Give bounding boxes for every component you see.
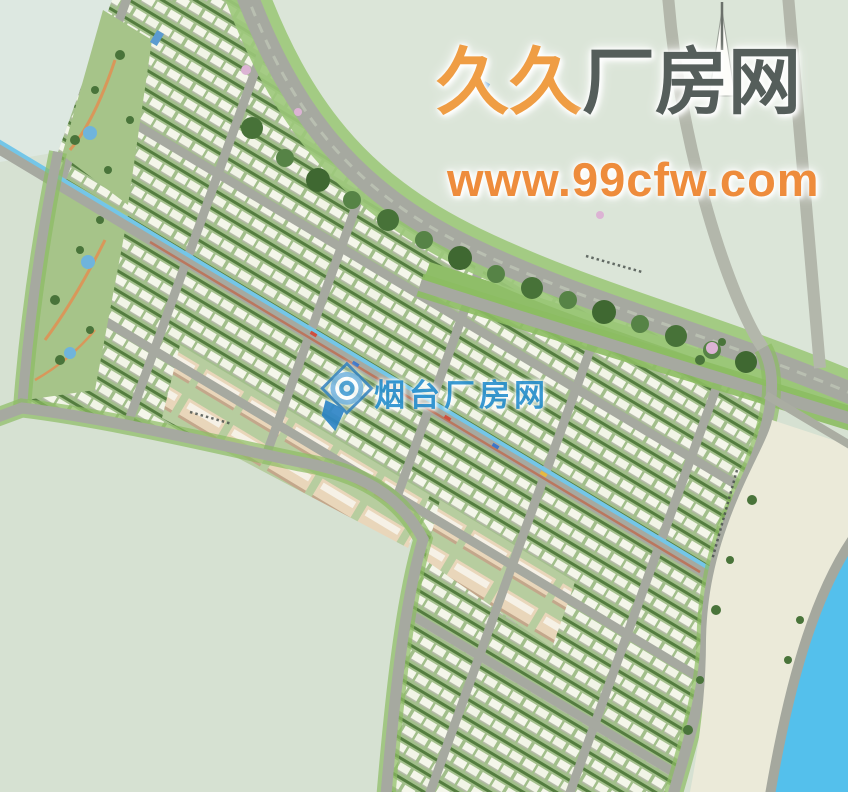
watermark-website: www.99cfw.com — [447, 152, 847, 207]
watermark-brand-suffix: 厂房网 — [582, 42, 801, 123]
watermark-brand-prefix: 久久 — [436, 42, 582, 123]
site-plan-screenshot: 久久厂房网 www.99cfw.com 烟台厂房网 — [0, 0, 848, 792]
pond — [64, 347, 76, 359]
watermark-center-brand: 烟台厂房网 — [374, 370, 549, 415]
pond — [81, 255, 95, 269]
watermark-brand: 久久厂房网 — [436, 46, 836, 119]
watermark-logo-icon — [312, 360, 374, 436]
watermark-center: 烟台厂房网 — [312, 358, 572, 442]
pond — [83, 126, 97, 140]
